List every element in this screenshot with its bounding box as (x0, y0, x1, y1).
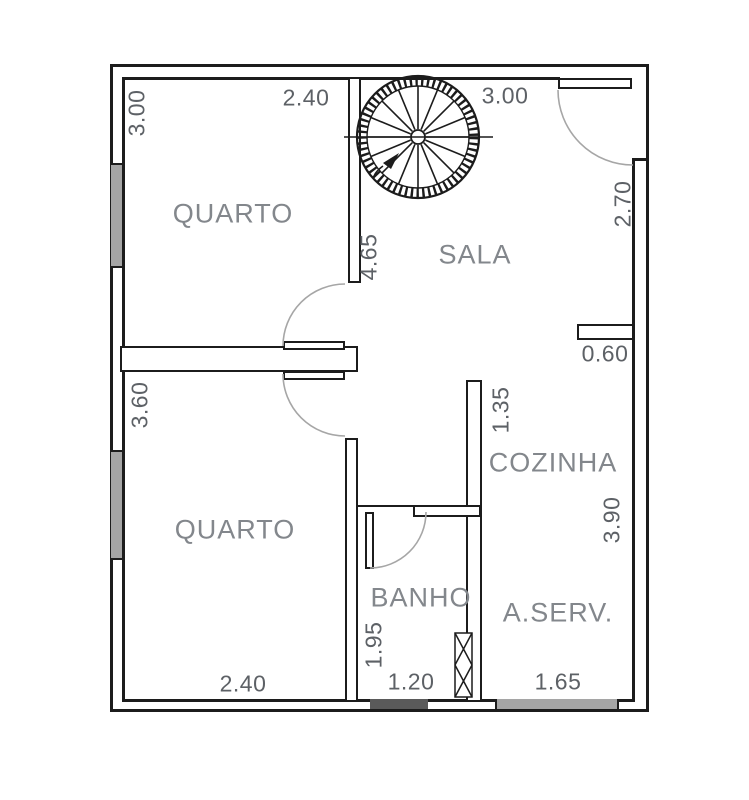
quarto2-door-leaf (283, 371, 345, 380)
banho-sill (370, 699, 428, 709)
banho-door-leaf (365, 512, 374, 569)
dim-label-banho-width: 1.20 (388, 671, 435, 694)
room-label-sala: SALA (438, 242, 511, 269)
dim-label-quarto2-height: 3.60 (129, 382, 152, 429)
inner-wall-top (122, 77, 560, 80)
inner-wall-right-cap (632, 158, 649, 161)
aserv-window (495, 699, 619, 709)
dim-label-cozinha-pass: 1.35 (490, 387, 513, 434)
wall-banho-top (413, 505, 481, 517)
outer-wall-left (110, 64, 113, 712)
dim-label-banho-height: 1.95 (363, 622, 386, 669)
inner-wall-left (122, 77, 125, 702)
dim-label-cozinha-jog: 0.60 (582, 343, 629, 366)
wall-cozinha-jog (577, 324, 634, 340)
spiral-staircase (344, 76, 493, 198)
stair-direction-arrow (383, 153, 399, 169)
dim-label-sala-width: 3.00 (482, 85, 529, 108)
room-label-banho: BANHO (370, 585, 471, 612)
dim-label-cozinha-height: 3.90 (601, 497, 624, 544)
entrance-door-leaf (558, 78, 632, 89)
quarto1-window (111, 163, 122, 268)
room-label-cozinha: COZINHA (489, 450, 618, 477)
quarto1-door-arc (283, 284, 345, 346)
dim-label-quarto2-width: 2.40 (220, 673, 267, 696)
quarto1-door-leaf (283, 341, 345, 350)
banho-door-arc (370, 512, 426, 568)
inner-wall-right (632, 158, 635, 702)
wall-banho-door-header (356, 505, 416, 507)
floor-plan: QUARTO SALA QUARTO COZINHA BANHO A.SERV.… (0, 0, 749, 800)
room-label-quarto1: QUARTO (173, 201, 294, 228)
dim-label-quarto1-height: 3.00 (126, 90, 149, 137)
entrance-door-arc (558, 90, 633, 165)
wall-cozinha-left (466, 380, 482, 702)
outer-wall-top (110, 64, 649, 67)
dim-label-sala-right: 2.70 (612, 181, 635, 228)
dim-label-quarto1-width: 2.40 (283, 87, 330, 110)
outer-wall-right (646, 64, 649, 712)
quarto2-door-arc (283, 374, 345, 436)
dim-label-aserv-width: 1.65 (535, 671, 582, 694)
dim-label-sala-depth: 4.65 (358, 234, 381, 281)
outer-wall-bottom (110, 709, 649, 712)
quarto2-window (111, 450, 122, 560)
room-label-quarto2: QUARTO (175, 517, 296, 544)
room-label-aserv: A.SERV. (503, 600, 614, 627)
wall-quarto2-banho (345, 438, 358, 702)
